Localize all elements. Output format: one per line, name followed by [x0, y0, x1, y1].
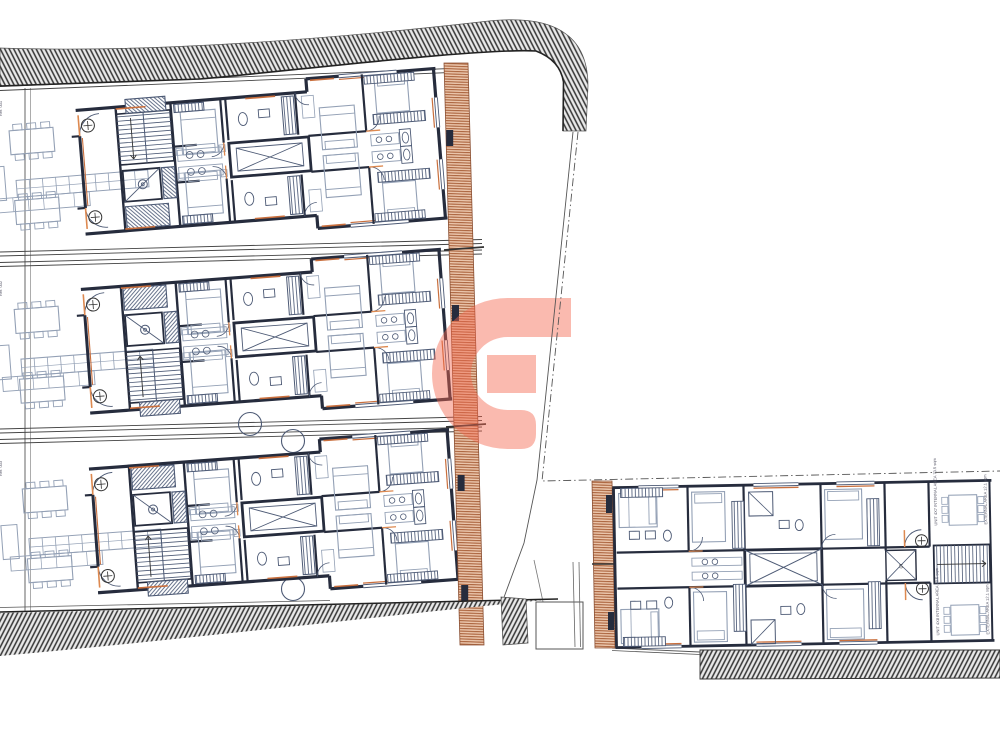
svg-text:Ref. 002: Ref. 002 — [0, 280, 3, 296]
svg-text:EXTERNAL AREA 12.1 sqm: EXTERNAL AREA 12.1 sqm — [982, 474, 988, 525]
svg-text:EXTERNAL AREA 12.1 sqm: EXTERNAL AREA 12.1 sqm — [984, 584, 990, 635]
svg-text:S: S — [899, 564, 903, 570]
svg-text:Ref. 001: Ref. 001 — [0, 100, 3, 116]
svg-text:Ref. 003: Ref. 003 — [0, 460, 3, 476]
